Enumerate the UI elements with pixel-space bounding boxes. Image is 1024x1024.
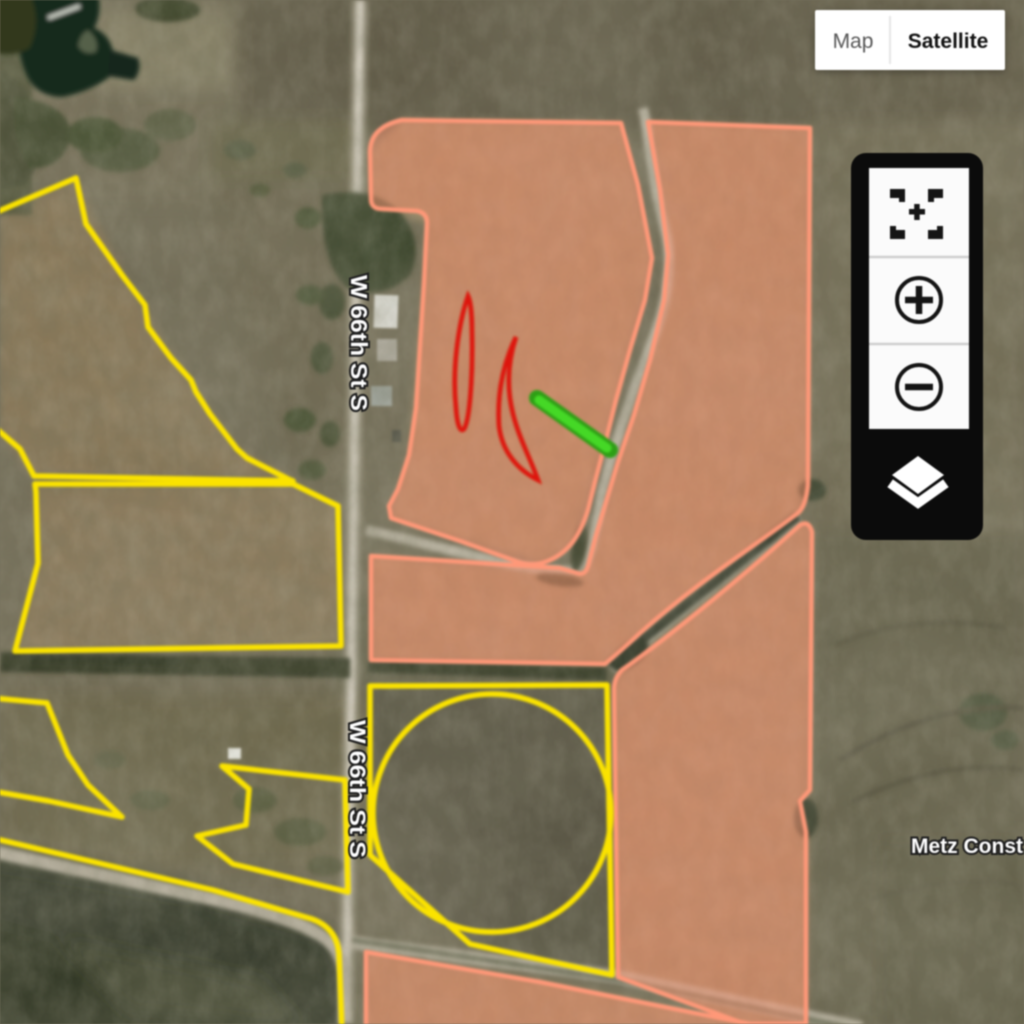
svg-text:Map: Map xyxy=(833,30,874,53)
svg-text:Metz Const: Metz Const xyxy=(911,835,1023,858)
svg-text:Satellite: Satellite xyxy=(908,30,989,53)
svg-text:W 66th St S: W 66th St S xyxy=(345,720,370,858)
svg-text:W 66th St S: W 66th St S xyxy=(346,275,372,411)
